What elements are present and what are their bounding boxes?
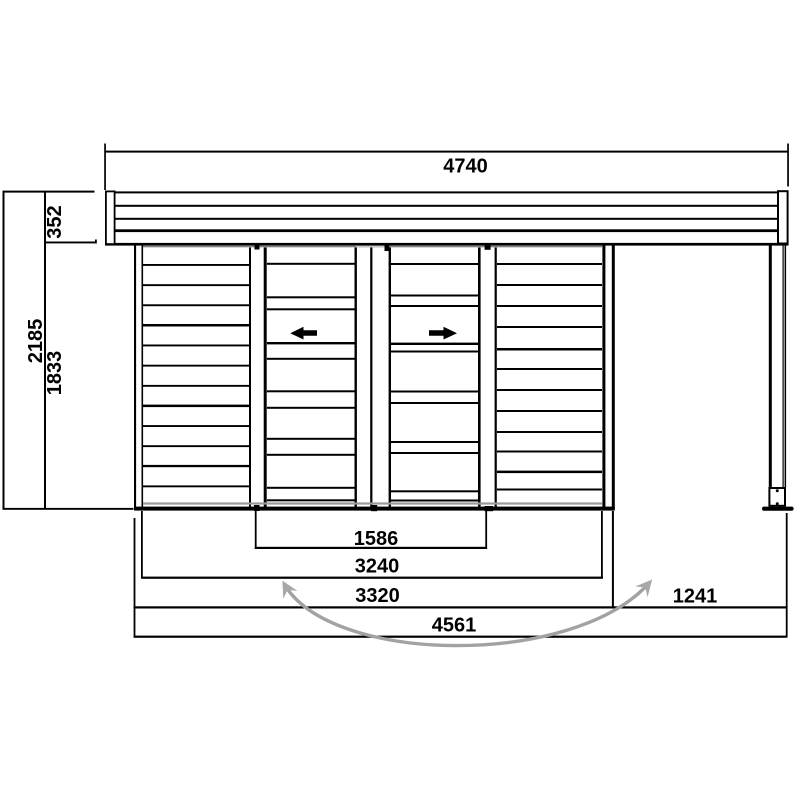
svg-text:1241: 1241 — [673, 586, 718, 608]
svg-text:352: 352 — [44, 205, 66, 238]
svg-text:4561: 4561 — [432, 615, 477, 637]
svg-text:3320: 3320 — [355, 585, 400, 607]
svg-text:1833: 1833 — [44, 351, 66, 396]
svg-text:1586: 1586 — [354, 528, 399, 550]
svg-text:3240: 3240 — [355, 556, 400, 578]
svg-text:4740: 4740 — [443, 156, 488, 178]
